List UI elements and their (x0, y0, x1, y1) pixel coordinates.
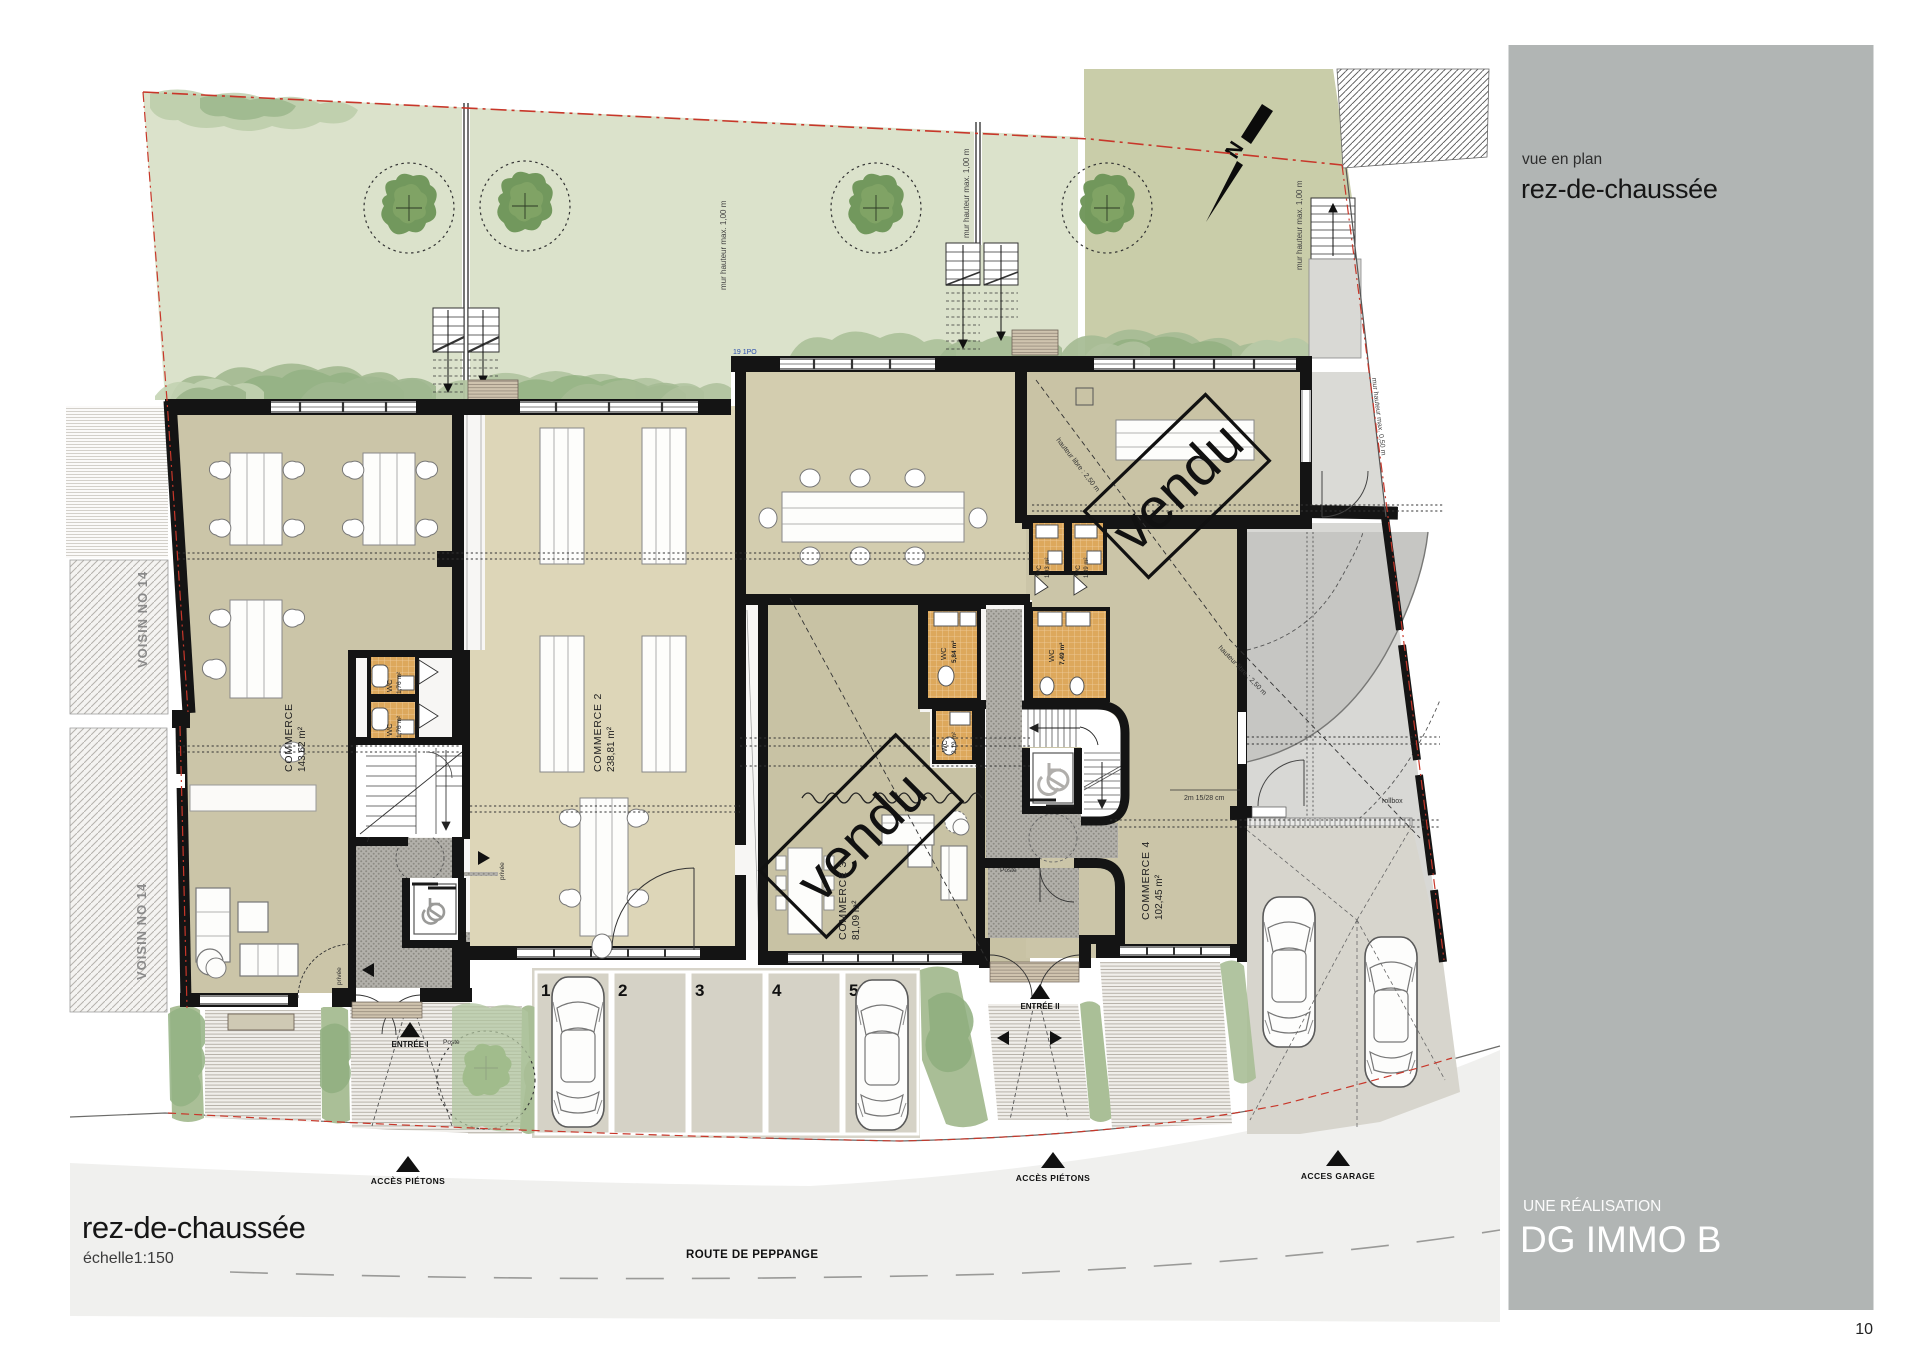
svg-text:échelle1:150: échelle1:150 (83, 1250, 174, 1267)
svg-text:vue en plan: vue en plan (1522, 151, 1602, 168)
svg-text:ENTRÉE I: ENTRÉE I (392, 1040, 429, 1049)
svg-text:rez-de-chaussée: rez-de-chaussée (82, 1210, 305, 1245)
svg-text:4: 4 (772, 981, 782, 1000)
svg-text:2,19 m²: 2,19 m² (951, 731, 958, 754)
svg-text:COMMERCE: COMMERCE (283, 703, 295, 772)
svg-text:1,89 m²: 1,89 m² (1084, 558, 1090, 578)
svg-text:2m 15/28 cm: 2m 15/28 cm (1184, 795, 1225, 802)
svg-text:DG IMMO B: DG IMMO B (1520, 1219, 1721, 1260)
svg-text:1,76 m²: 1,76 m² (396, 715, 403, 738)
svg-text:WC: WC (1075, 565, 1082, 576)
svg-text:19 1PO: 19 1PO (733, 349, 757, 356)
svg-text:privée: privée (499, 862, 506, 880)
svg-text:1,93 m²: 1,93 m² (1045, 558, 1051, 578)
svg-text:mur hauteur max. 1,00 m: mur hauteur max. 1,00 m (962, 148, 971, 238)
svg-text:WC: WC (939, 647, 948, 660)
svg-text:mur hauteur max. 1,00 m: mur hauteur max. 1,00 m (1295, 180, 1304, 270)
svg-text:mur hauteur max. 1,00 m: mur hauteur max. 1,00 m (719, 200, 728, 290)
svg-text:WC: WC (385, 679, 394, 692)
svg-text:WC: WC (1047, 649, 1056, 662)
svg-text:COMMERCE 2: COMMERCE 2 (592, 693, 604, 772)
svg-text:VOISIN NO 14: VOISIN NO 14 (135, 571, 150, 668)
svg-text:102,45 m²: 102,45 m² (1154, 874, 1165, 920)
svg-text:ACCÈS PIÉTONS: ACCÈS PIÉTONS (371, 1176, 445, 1186)
svg-text:10: 10 (1855, 1321, 1873, 1338)
svg-text:Poste: Poste (443, 1039, 460, 1046)
svg-text:1: 1 (541, 981, 550, 1000)
svg-text:WC: WC (1036, 565, 1043, 576)
svg-text:7,49 m²: 7,49 m² (1059, 642, 1066, 665)
svg-text:Poste: Poste (1000, 867, 1017, 874)
svg-text:rez-de-chaussée: rez-de-chaussée (1521, 174, 1718, 204)
svg-text:COMMERCE 4: COMMERCE 4 (1140, 841, 1152, 920)
svg-text:5,84 m²: 5,84 m² (951, 640, 958, 663)
svg-text:WC: WC (385, 723, 394, 736)
svg-text:COMMERCE 3: COMMERCE 3 (837, 861, 849, 940)
svg-text:2: 2 (618, 981, 627, 1000)
svg-text:143,62 m²: 143,62 m² (297, 726, 308, 772)
svg-text:UNE RÉALISATION: UNE RÉALISATION (1523, 1198, 1661, 1215)
svg-text:1,76 m²: 1,76 m² (396, 671, 403, 694)
svg-text:3: 3 (695, 981, 704, 1000)
svg-text:privée: privée (336, 967, 343, 985)
svg-text:7: 7 (366, 837, 370, 844)
svg-text:VOISIN NO 14: VOISIN NO 14 (134, 883, 149, 980)
svg-text:ENTRÉE II: ENTRÉE II (1020, 1002, 1059, 1011)
svg-text:ACCES GARAGE: ACCES GARAGE (1301, 1171, 1375, 1181)
svg-text:ACCÈS PIÉTONS: ACCÈS PIÉTONS (1016, 1173, 1090, 1183)
svg-text:81,09 m²: 81,09 m² (851, 900, 862, 940)
svg-text:238,81 m²: 238,81 m² (606, 726, 617, 772)
svg-text:ROUTE DE PEPPANGE: ROUTE DE PEPPANGE (686, 1249, 818, 1261)
